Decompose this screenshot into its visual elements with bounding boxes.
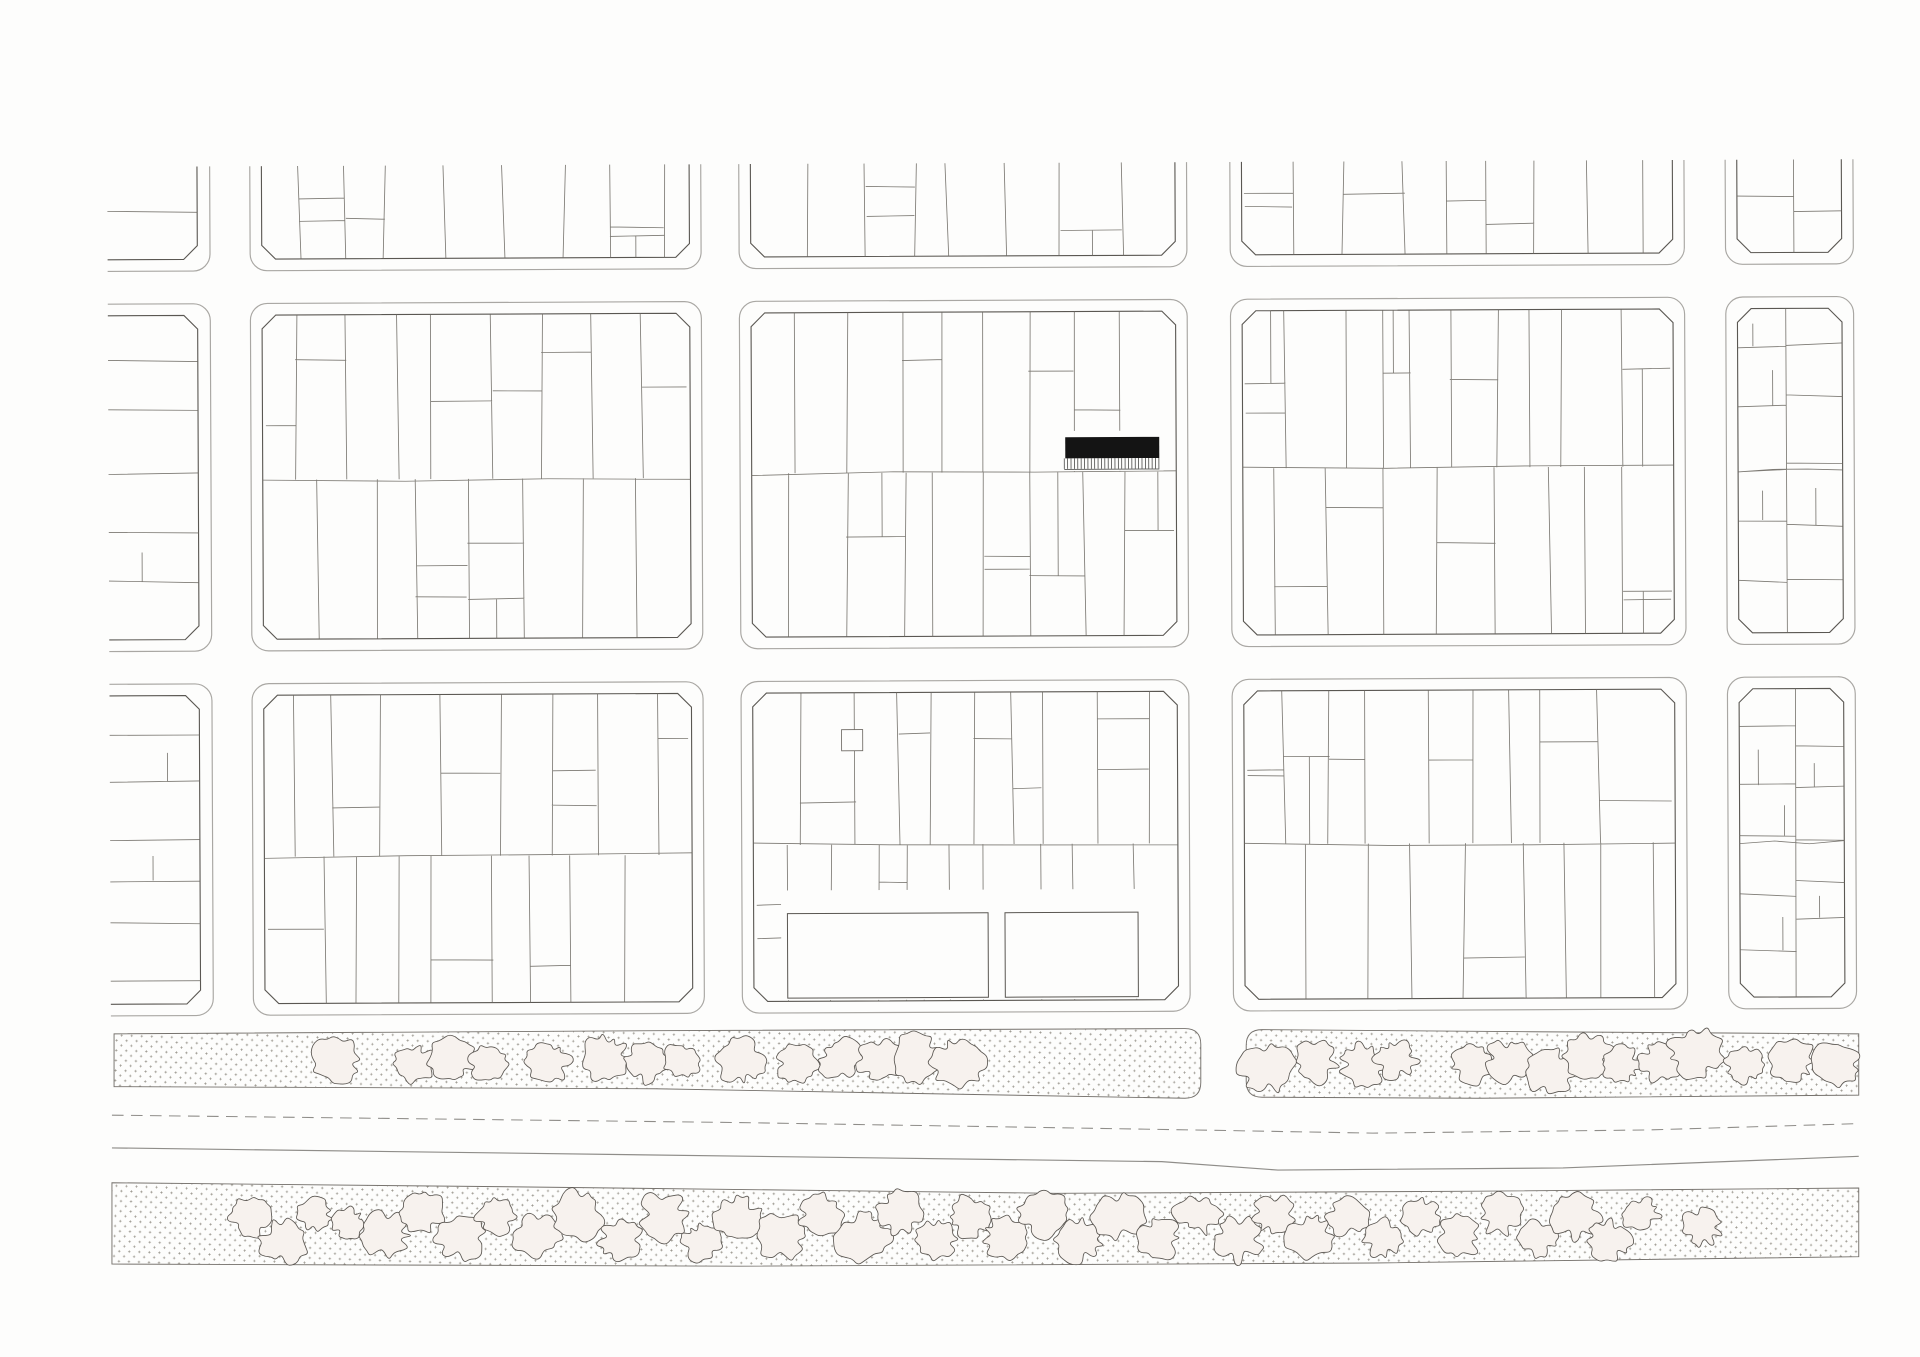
city-block-r2-c1 (250, 302, 702, 651)
block-edge-outline (750, 162, 1175, 257)
site-plan-drawing (0, 0, 1920, 1357)
parcel-lines (264, 693, 693, 1003)
parcel-lines (110, 735, 201, 981)
tree-canopy (757, 1214, 805, 1261)
city-block-r1-c3 (1230, 160, 1685, 267)
street-curb-outline (1726, 297, 1855, 645)
street-curb-outline (1230, 160, 1685, 267)
parcel-lines (751, 311, 1177, 637)
city-block-r3-L (109, 684, 213, 1016)
site-plan-page (0, 0, 1920, 1357)
parcel-lines (107, 211, 197, 213)
city-block-r2-L (108, 304, 212, 652)
highlighted-building-footprint (1065, 437, 1159, 459)
city-block-r1-c2 (739, 162, 1187, 268)
city-block-r3-c2 (741, 680, 1190, 1014)
road-centerline-dashed (112, 1115, 1859, 1133)
city-blocks (107, 159, 1856, 1016)
block-edge-outline (1241, 160, 1672, 255)
city-block-r1-c1 (250, 164, 701, 271)
street-curb-outline (739, 162, 1187, 268)
plaza-court-2 (1005, 912, 1138, 997)
city-block-r3-c3 (1232, 677, 1688, 1011)
parcel-lines (1739, 688, 1845, 997)
city-block-r2-c2 (739, 299, 1188, 648)
street-curb-outline (1230, 297, 1686, 646)
city-block-r1-L (107, 166, 210, 271)
parcel-lines (1244, 160, 1643, 255)
boulevard (112, 1028, 1860, 1266)
parcel-lines (108, 360, 199, 583)
city-block-r3-c1 (252, 682, 704, 1016)
block-edge-outline (109, 696, 200, 1005)
city-block-r2-c4 (1726, 297, 1855, 645)
street-curb-outline (252, 682, 704, 1016)
street-curb-outline (109, 684, 213, 1016)
block-edge-outline (108, 315, 199, 640)
street-curb-outline (108, 304, 212, 652)
highlighted-building (1058, 430, 1164, 471)
tree-canopy (1437, 1214, 1478, 1257)
parcel-lines (807, 162, 1124, 256)
parcel-lines (1242, 309, 1674, 635)
road-edge-line (112, 1148, 1859, 1170)
block-edge-outline (261, 164, 689, 259)
parcel-lines (1737, 159, 1842, 252)
block-edge-outline (264, 693, 693, 1003)
street-curb-outline (107, 166, 210, 271)
block-edge-outline (1242, 309, 1674, 635)
small-court-square (842, 730, 863, 751)
parcel-lines (1737, 308, 1843, 633)
parcel-lines (1244, 689, 1676, 999)
city-block-r2-c3 (1230, 297, 1686, 646)
street-curb-outline (1725, 159, 1853, 264)
parcel-lines (262, 313, 691, 639)
block-edge-outline (107, 166, 197, 259)
block-edge-outline (1737, 159, 1842, 252)
parcel-lines (298, 164, 665, 259)
street-curb-outline (250, 164, 701, 271)
block-edge-outline (262, 313, 691, 639)
plaza-court-1 (787, 913, 988, 998)
city-block-r3-c4 (1727, 677, 1856, 1009)
city-block-r1-c4 (1725, 159, 1853, 264)
